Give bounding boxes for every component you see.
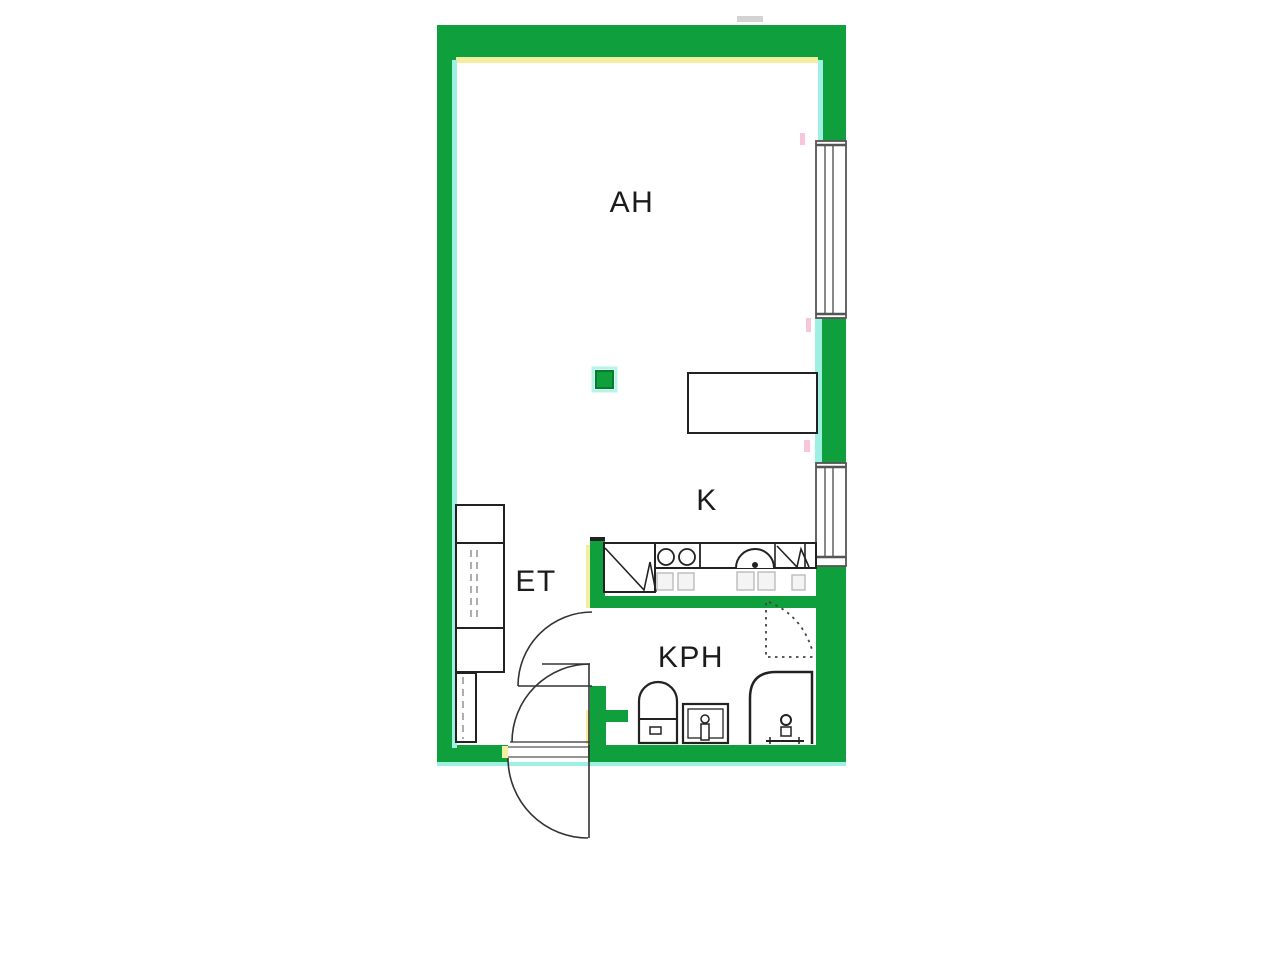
entrance-door-arc-inner (512, 664, 590, 742)
refrigerator (604, 543, 655, 592)
shower-slope-marking (766, 602, 814, 657)
wall-bottom-left (437, 745, 508, 762)
wardrobe-closets (456, 505, 504, 742)
toilet-flush-button (650, 727, 661, 734)
shower-mixer (781, 715, 791, 725)
support-column (593, 368, 616, 391)
stove-burner-left (658, 549, 674, 565)
room-label-ah: AH (610, 186, 655, 219)
pink-mark-1 (800, 133, 805, 145)
wall-kph-north (590, 596, 816, 608)
cabinet-fronts (657, 572, 805, 590)
bathroom-door-arc (518, 612, 592, 686)
bathroom-door-swing (518, 612, 592, 686)
wall-right-lower (816, 566, 846, 762)
entrance-doorway (508, 745, 588, 762)
entrance-door-arc-outer (508, 758, 588, 838)
shower (750, 672, 812, 744)
stove-burner-right (679, 549, 695, 565)
cyan-strip-right-upper (818, 60, 823, 141)
pink-mark-3 (804, 440, 810, 452)
wall-kph-west (590, 686, 606, 760)
kitchen-sink-drain (752, 562, 758, 568)
wall-right-mid (822, 318, 846, 463)
floor-plan-page: AH K ET KPH (0, 0, 1280, 960)
room-label-kph: KPH (658, 641, 724, 674)
wall-divider-cap (590, 537, 605, 541)
toilet (639, 682, 677, 743)
room-label-et: ET (515, 565, 556, 598)
cyan-strip-bottom (437, 762, 846, 766)
dining-table (688, 373, 817, 433)
wall-right-upper (822, 25, 846, 141)
window-upper (816, 141, 846, 318)
washbasin (683, 704, 728, 743)
washbasin-faucet (701, 715, 709, 723)
kitchen-counter (604, 543, 816, 592)
yellow-strip-entrance-jamb (502, 746, 508, 758)
room-label-k: K (696, 484, 718, 517)
pink-mark-2 (806, 318, 811, 332)
yellow-strip-divider (586, 545, 590, 608)
floor-plan-svg: AH K ET KPH (0, 0, 1280, 960)
wall-bottom-right (588, 745, 846, 762)
wall-kph-stub (604, 710, 628, 722)
wall-top (437, 25, 846, 60)
yellow-strip-top (456, 57, 818, 63)
window-lower (816, 463, 846, 566)
gray-notch-top (737, 16, 763, 22)
